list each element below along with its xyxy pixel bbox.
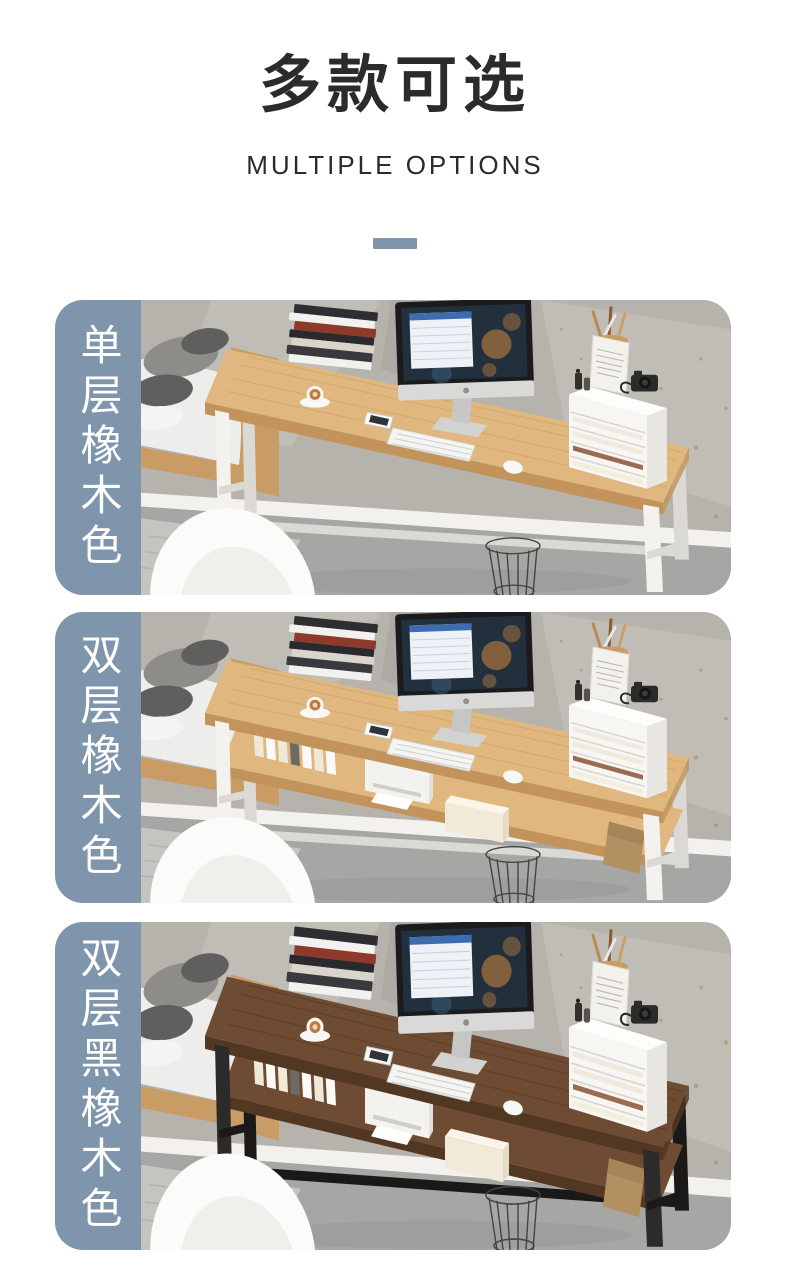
pen-cup [590, 931, 629, 1027]
variant-label: 单层橡木色 [77, 323, 119, 573]
page-subtitle: MULTIPLE OPTIONS [0, 150, 790, 181]
room-photo [141, 300, 731, 595]
page-title: 多款可选 [0, 34, 790, 124]
variant-tab: 双层黑橡木色 [55, 922, 141, 1250]
pen-cup [590, 620, 629, 705]
product-photo [141, 922, 731, 1250]
product-card-double-black-oak: 双层黑橡木色 [55, 922, 731, 1250]
product-card-double-oak: 双层橡木色 [55, 612, 731, 903]
book-stack [284, 926, 378, 1000]
variant-tab: 双层橡木色 [55, 612, 141, 903]
book-stack [284, 615, 378, 681]
variant-tab: 单层橡木色 [55, 300, 141, 595]
variant-label: 双层橡木色 [77, 633, 119, 883]
product-photo [141, 612, 731, 903]
book-stack [284, 304, 378, 371]
promo-page: 多款可选 MULTIPLE OPTIONS 单层橡木色 [0, 0, 790, 1276]
room-photo [141, 612, 731, 903]
variant-label: 双层黑橡木色 [77, 936, 119, 1236]
divider-dash [373, 238, 417, 249]
product-card-single-oak: 单层橡木色 [55, 300, 731, 595]
pen-cup [590, 308, 629, 395]
room-photo [141, 922, 731, 1250]
product-photo [141, 300, 731, 595]
